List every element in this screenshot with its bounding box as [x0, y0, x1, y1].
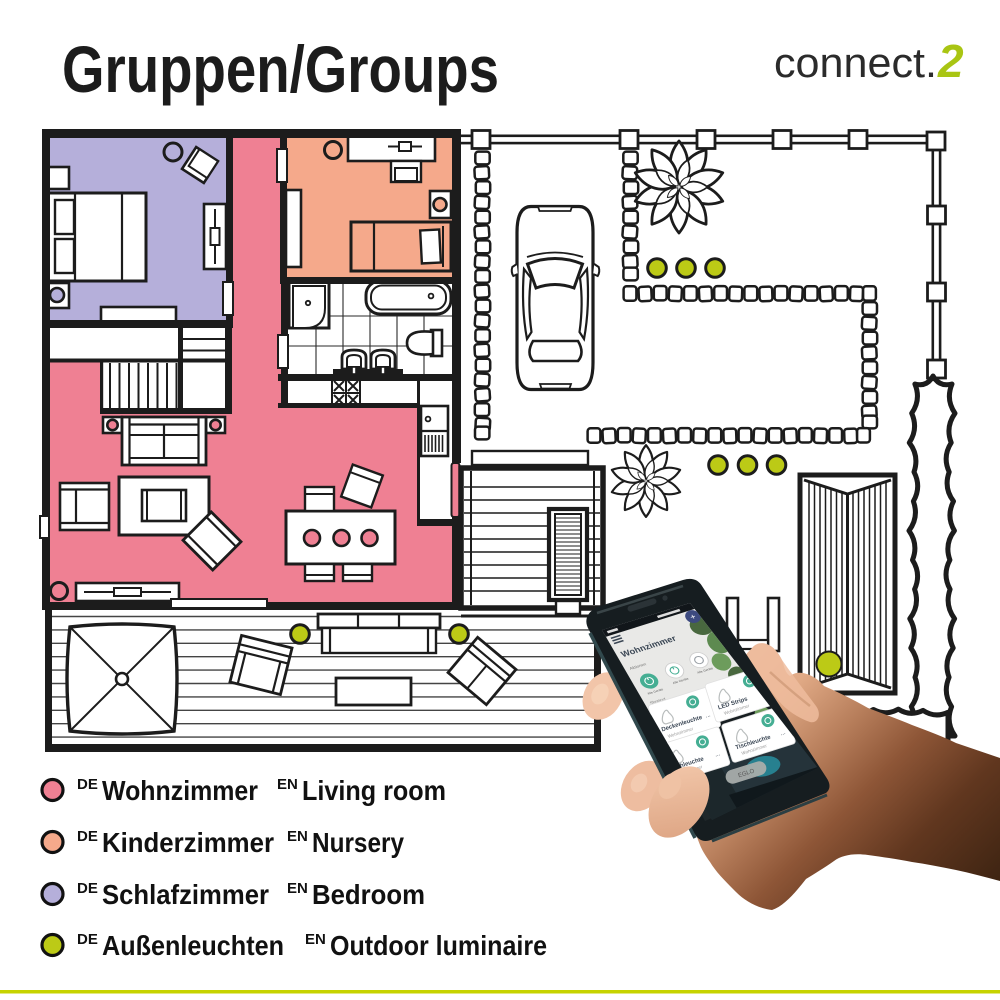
- svg-text:Gruppen/Groups: Gruppen/Groups: [62, 32, 499, 106]
- svg-text:DE: DE: [77, 931, 98, 948]
- svg-text:DE: DE: [77, 776, 98, 793]
- svg-text:Outdoor luminaire: Outdoor luminaire: [330, 930, 547, 961]
- svg-text:EN: EN: [287, 828, 308, 845]
- svg-text:2: 2: [937, 35, 964, 87]
- svg-text:Wohnzimmer: Wohnzimmer: [102, 775, 258, 806]
- svg-text:Nursery: Nursery: [312, 827, 404, 858]
- svg-text:EN: EN: [287, 880, 308, 897]
- svg-text:Schlafzimmer: Schlafzimmer: [102, 879, 269, 910]
- svg-text:Kinderzimmer: Kinderzimmer: [102, 827, 274, 858]
- svg-text:Außenleuchten: Außenleuchten: [102, 930, 284, 961]
- svg-text:DE: DE: [77, 828, 98, 845]
- svg-text:connect.: connect.: [774, 39, 937, 86]
- svg-text:DE: DE: [77, 880, 98, 897]
- svg-text:Bedroom: Bedroom: [312, 879, 425, 910]
- svg-text:EN: EN: [305, 931, 326, 948]
- svg-text:Living room: Living room: [302, 775, 446, 806]
- svg-text:EN: EN: [277, 776, 298, 793]
